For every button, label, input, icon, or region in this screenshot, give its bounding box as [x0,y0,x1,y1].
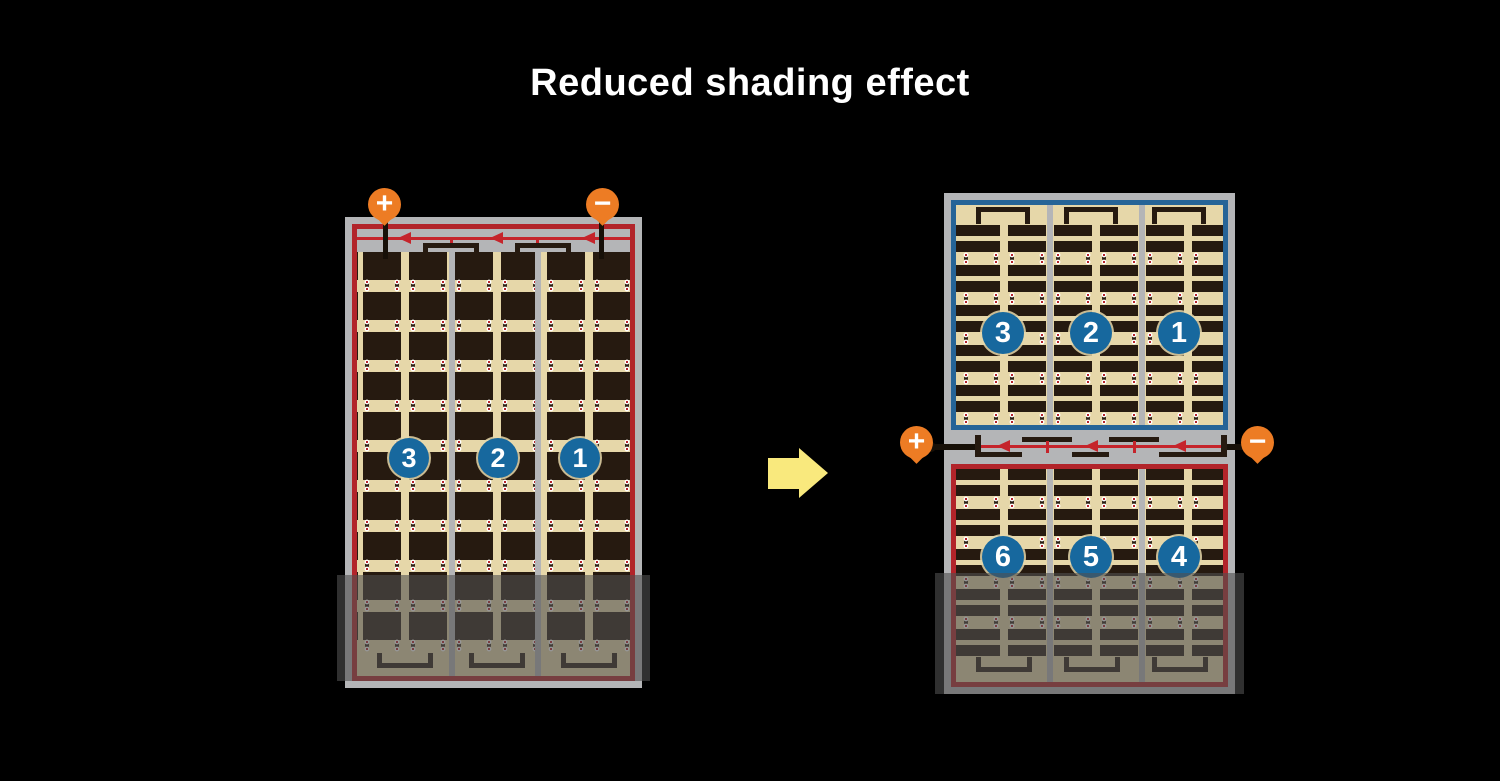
series-bus-bar [1152,207,1206,224]
junction-box [944,437,1235,457]
diode-arrow-icon [1085,440,1098,452]
diode-arrow-icon [1173,440,1186,452]
section-divider [1047,205,1053,425]
section-divider [1139,205,1145,425]
diagram-title: Reduced shading effect [0,62,1500,105]
half-cell-panel-top: 3 2 1 [944,193,1235,437]
plus-terminal: + [368,188,401,221]
string-badge: 2 [478,438,518,478]
plus-terminal-label: + [908,425,926,458]
half-cell-panel-bottom: 6 5 4 [944,457,1235,694]
minus-terminal-label: − [1249,425,1267,458]
string-badge: 3 [389,438,429,478]
diode-arrow-icon [997,440,1010,452]
arrow-head [799,448,828,498]
diode-arrow-icon [398,232,411,244]
plus-terminal: + [900,426,933,459]
string-badge: 1 [560,438,600,478]
series-bus-bar [976,207,1030,224]
series-bus-bar [423,243,479,259]
diode-arrow-icon [582,232,595,244]
string-badge: 3 [982,312,1024,354]
string-badge: 4 [1158,536,1200,578]
plus-terminal-label: + [376,187,394,220]
string-badge: 5 [1070,536,1112,578]
series-bus-bar [1064,207,1118,224]
string-badge: 1 [1158,312,1200,354]
bus-strip [357,229,630,252]
minus-terminal: − [1241,426,1274,459]
diode-arrow-icon [490,232,503,244]
series-bus-bar [515,243,571,259]
full-cell-panel: 3 2 1 + − [345,217,642,688]
minus-terminal-label: − [594,187,612,220]
terminal-wire [930,444,975,450]
string-badge: 6 [982,536,1024,578]
string-badge: 2 [1070,312,1112,354]
diagram-canvas: Reduced shading effect 3 2 1 [0,0,1500,781]
arrow-body [768,458,799,489]
shading-overlay [935,573,1244,694]
transform-arrow-icon [768,448,828,498]
bus-tick [1133,441,1136,453]
minus-terminal: − [586,188,619,221]
shading-overlay [337,575,650,681]
bus-tick [1046,441,1049,453]
panel-frame: 3 2 1 [951,200,1228,430]
